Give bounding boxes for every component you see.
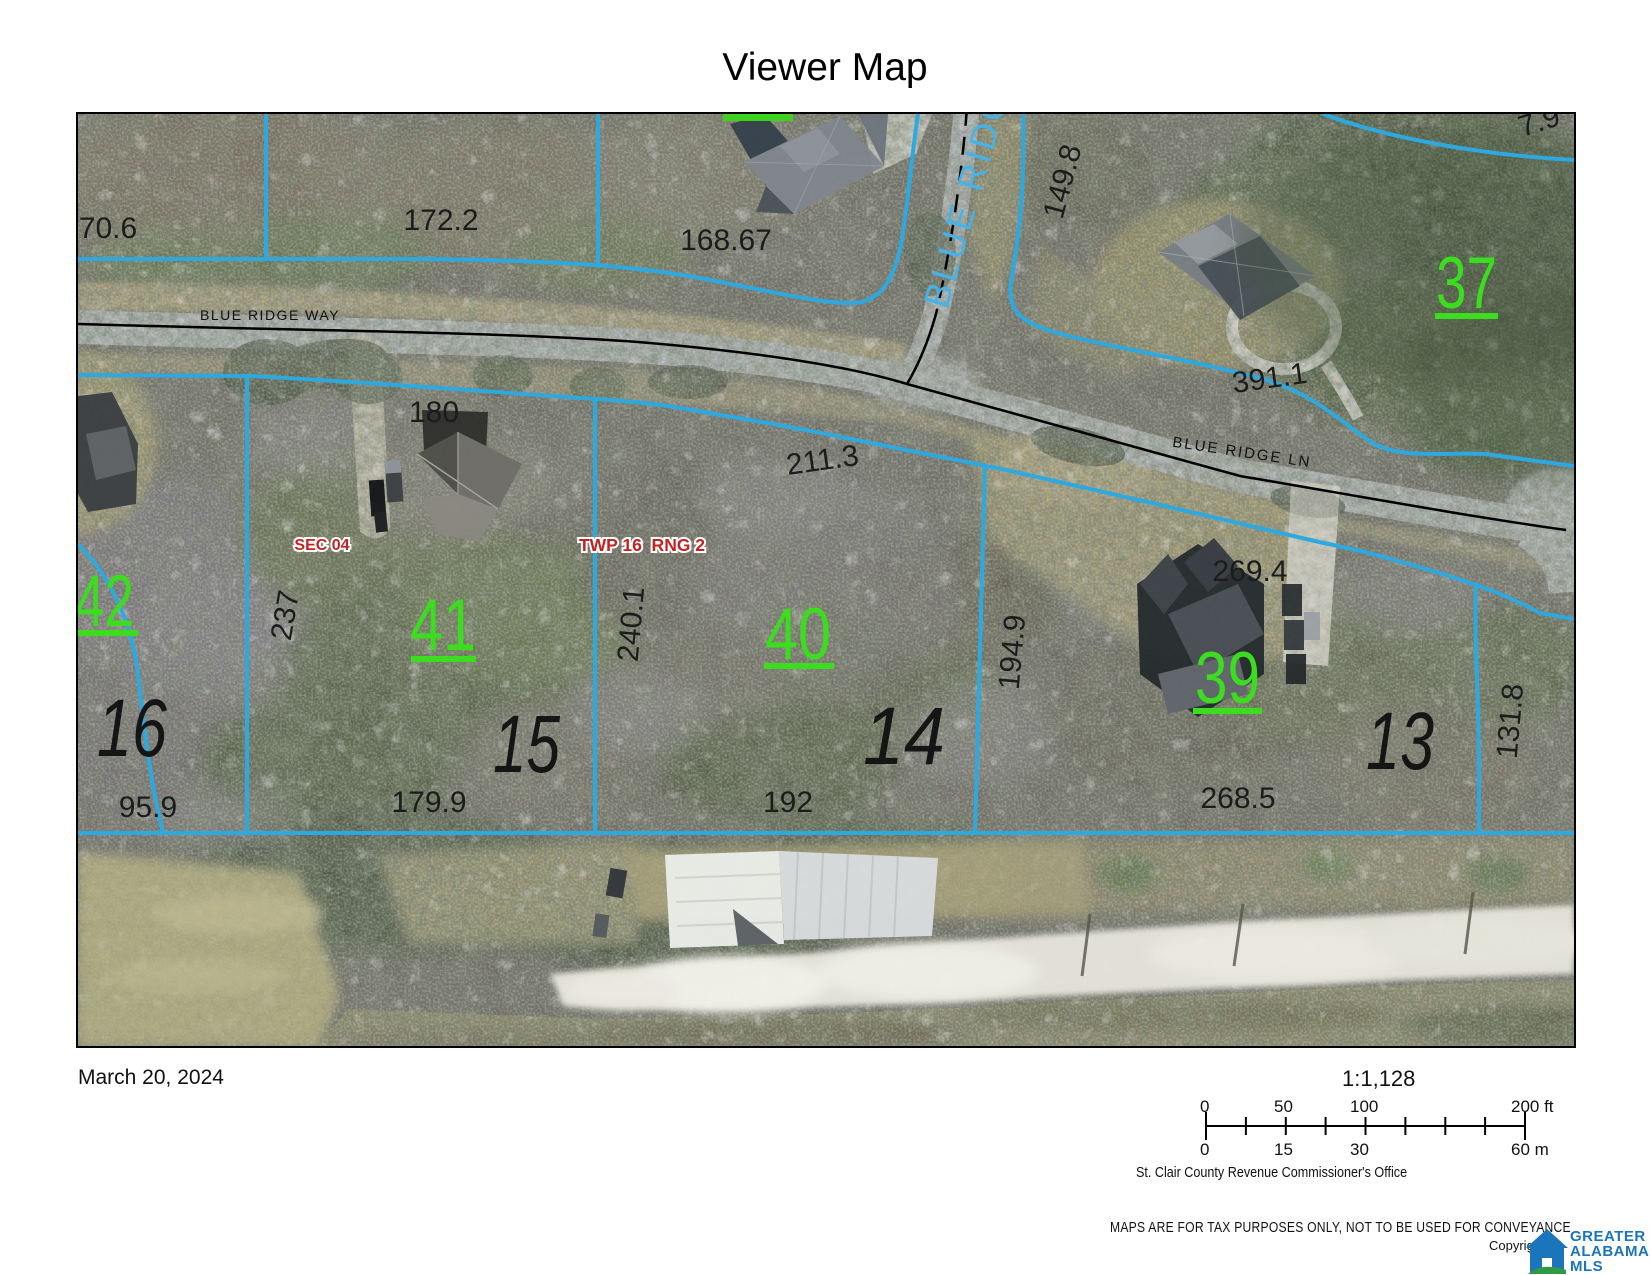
svg-text:194.9: 194.9 — [993, 613, 1032, 691]
svg-text:70.6: 70.6 — [79, 212, 137, 245]
svg-text:180: 180 — [409, 396, 459, 429]
svg-text:14: 14 — [863, 691, 945, 782]
svg-text:172.2: 172.2 — [403, 204, 478, 237]
svg-text:13: 13 — [1366, 696, 1434, 787]
svg-text:39: 39 — [1195, 638, 1260, 719]
svg-text:SEC 04: SEC 04 — [294, 537, 349, 554]
svg-text:131.8: 131.8 — [1491, 682, 1530, 760]
svg-text:16: 16 — [97, 683, 167, 774]
svg-text:268.5: 268.5 — [1200, 782, 1275, 815]
svg-text:168.67: 168.67 — [680, 224, 772, 257]
svg-text:41: 41 — [410, 585, 476, 666]
svg-text:240.1: 240.1 — [612, 585, 651, 663]
svg-text:192: 192 — [763, 786, 813, 819]
svg-text:TWP 16 RNG 2: TWP 16 RNG 2 — [579, 535, 705, 555]
svg-text:269.4: 269.4 — [1212, 555, 1287, 588]
svg-text:15: 15 — [493, 699, 560, 790]
svg-text:95.9: 95.9 — [119, 791, 177, 824]
svg-text:40: 40 — [765, 594, 831, 675]
svg-text:MLS: MLS — [1570, 1258, 1603, 1275]
svg-text:37: 37 — [1436, 243, 1497, 324]
svg-text:42: 42 — [78, 561, 134, 642]
svg-text:BLUE RIDGE WAY: BLUE RIDGE WAY — [200, 307, 340, 323]
svg-text:179.9: 179.9 — [391, 786, 466, 819]
